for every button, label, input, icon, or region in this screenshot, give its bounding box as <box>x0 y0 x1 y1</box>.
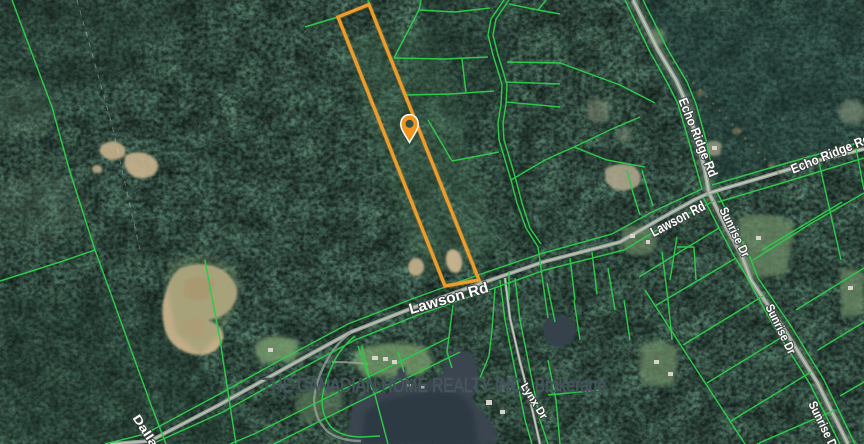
svg-text:THE CANADIAN HOME REALTY INC.,: THE CANADIAN HOME REALTY INC., Brokerage <box>262 375 606 397</box>
